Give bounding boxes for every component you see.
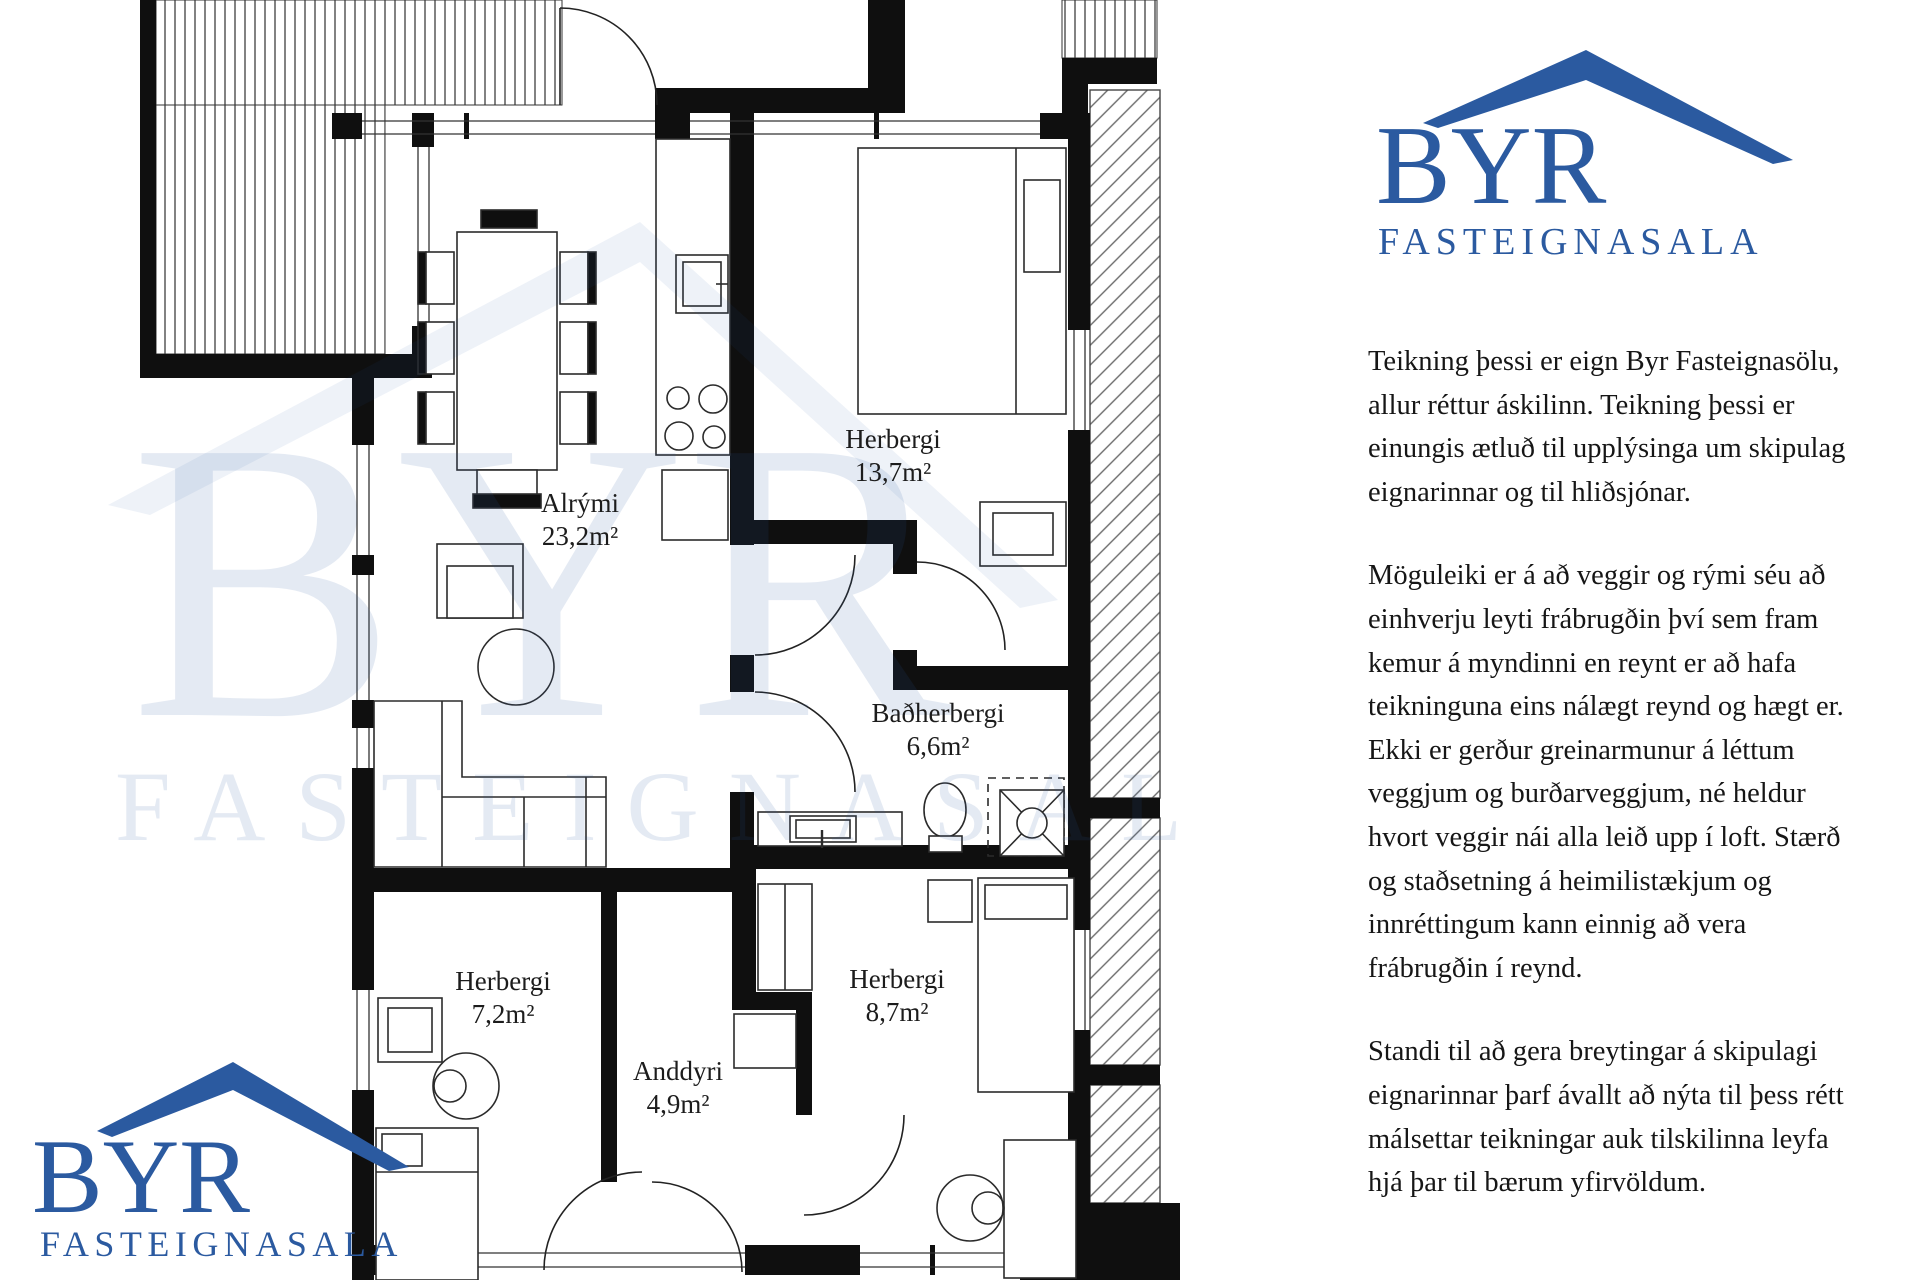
chair-72 [433, 1053, 499, 1119]
brand-svg: BYR FASTEIGNASALA [1368, 28, 1854, 266]
logo-top-right: BYR FASTEIGNASALA [1368, 28, 1854, 266]
floor-plan: BYR FASTEIGNASALA Alrými 23,2m² Herbergi… [0, 0, 1200, 1280]
room-area: 4,9m² [647, 1089, 710, 1119]
bed-single [978, 878, 1074, 1092]
wardrobe [734, 1014, 796, 1068]
disclaimer-paragraph-3: Standi til að gera breytingar á skipulag… [1368, 1030, 1846, 1204]
room-label: Herbergi [455, 966, 550, 996]
desk [1004, 1140, 1076, 1278]
logo-title: BYR [1376, 104, 1607, 228]
floorplan-page: BYR FASTEIGNASALA Alrými 23,2m² Herbergi… [0, 0, 1920, 1280]
room-area: 23,2m² [542, 521, 618, 551]
room-label: Herbergi [845, 424, 940, 454]
disclaimer-paragraph-1: Teikning þessi er eign Byr Fasteignasölu… [1368, 340, 1846, 514]
logo-subtitle: FASTEIGNASALA [40, 1224, 403, 1264]
room-area: 13,7m² [855, 457, 931, 487]
closet [758, 884, 812, 990]
watermark-subtitle: FASTEIGNASALA [115, 751, 1200, 862]
nightstand [928, 880, 972, 922]
disclaimer-text: Teikning þessi er eign Byr Fasteignasölu… [1368, 340, 1846, 1205]
room-label: Anddyri [633, 1056, 723, 1086]
logo-title: BYR [32, 1118, 250, 1235]
info-panel: BYR FASTEIGNASALA Teikning þessi er eign… [1368, 28, 1854, 1245]
room-label: Herbergi [849, 964, 944, 994]
balcony-hatch [1090, 90, 1160, 1203]
room-area: 6,6m² [907, 731, 970, 761]
watermark-title: BYR [130, 359, 954, 802]
room-area: 7,2m² [472, 999, 535, 1029]
room-area: 8,7m² [866, 997, 929, 1027]
room-label: Alrými [541, 488, 619, 518]
desk-chair [937, 1175, 1004, 1241]
logo-subtitle: FASTEIGNASALA [1378, 221, 1764, 263]
dresser-small [378, 998, 442, 1062]
room-label: Baðherbergi [872, 698, 1005, 728]
disclaimer-paragraph-2: Möguleiki er á að veggir og rými séu að … [1368, 554, 1846, 990]
